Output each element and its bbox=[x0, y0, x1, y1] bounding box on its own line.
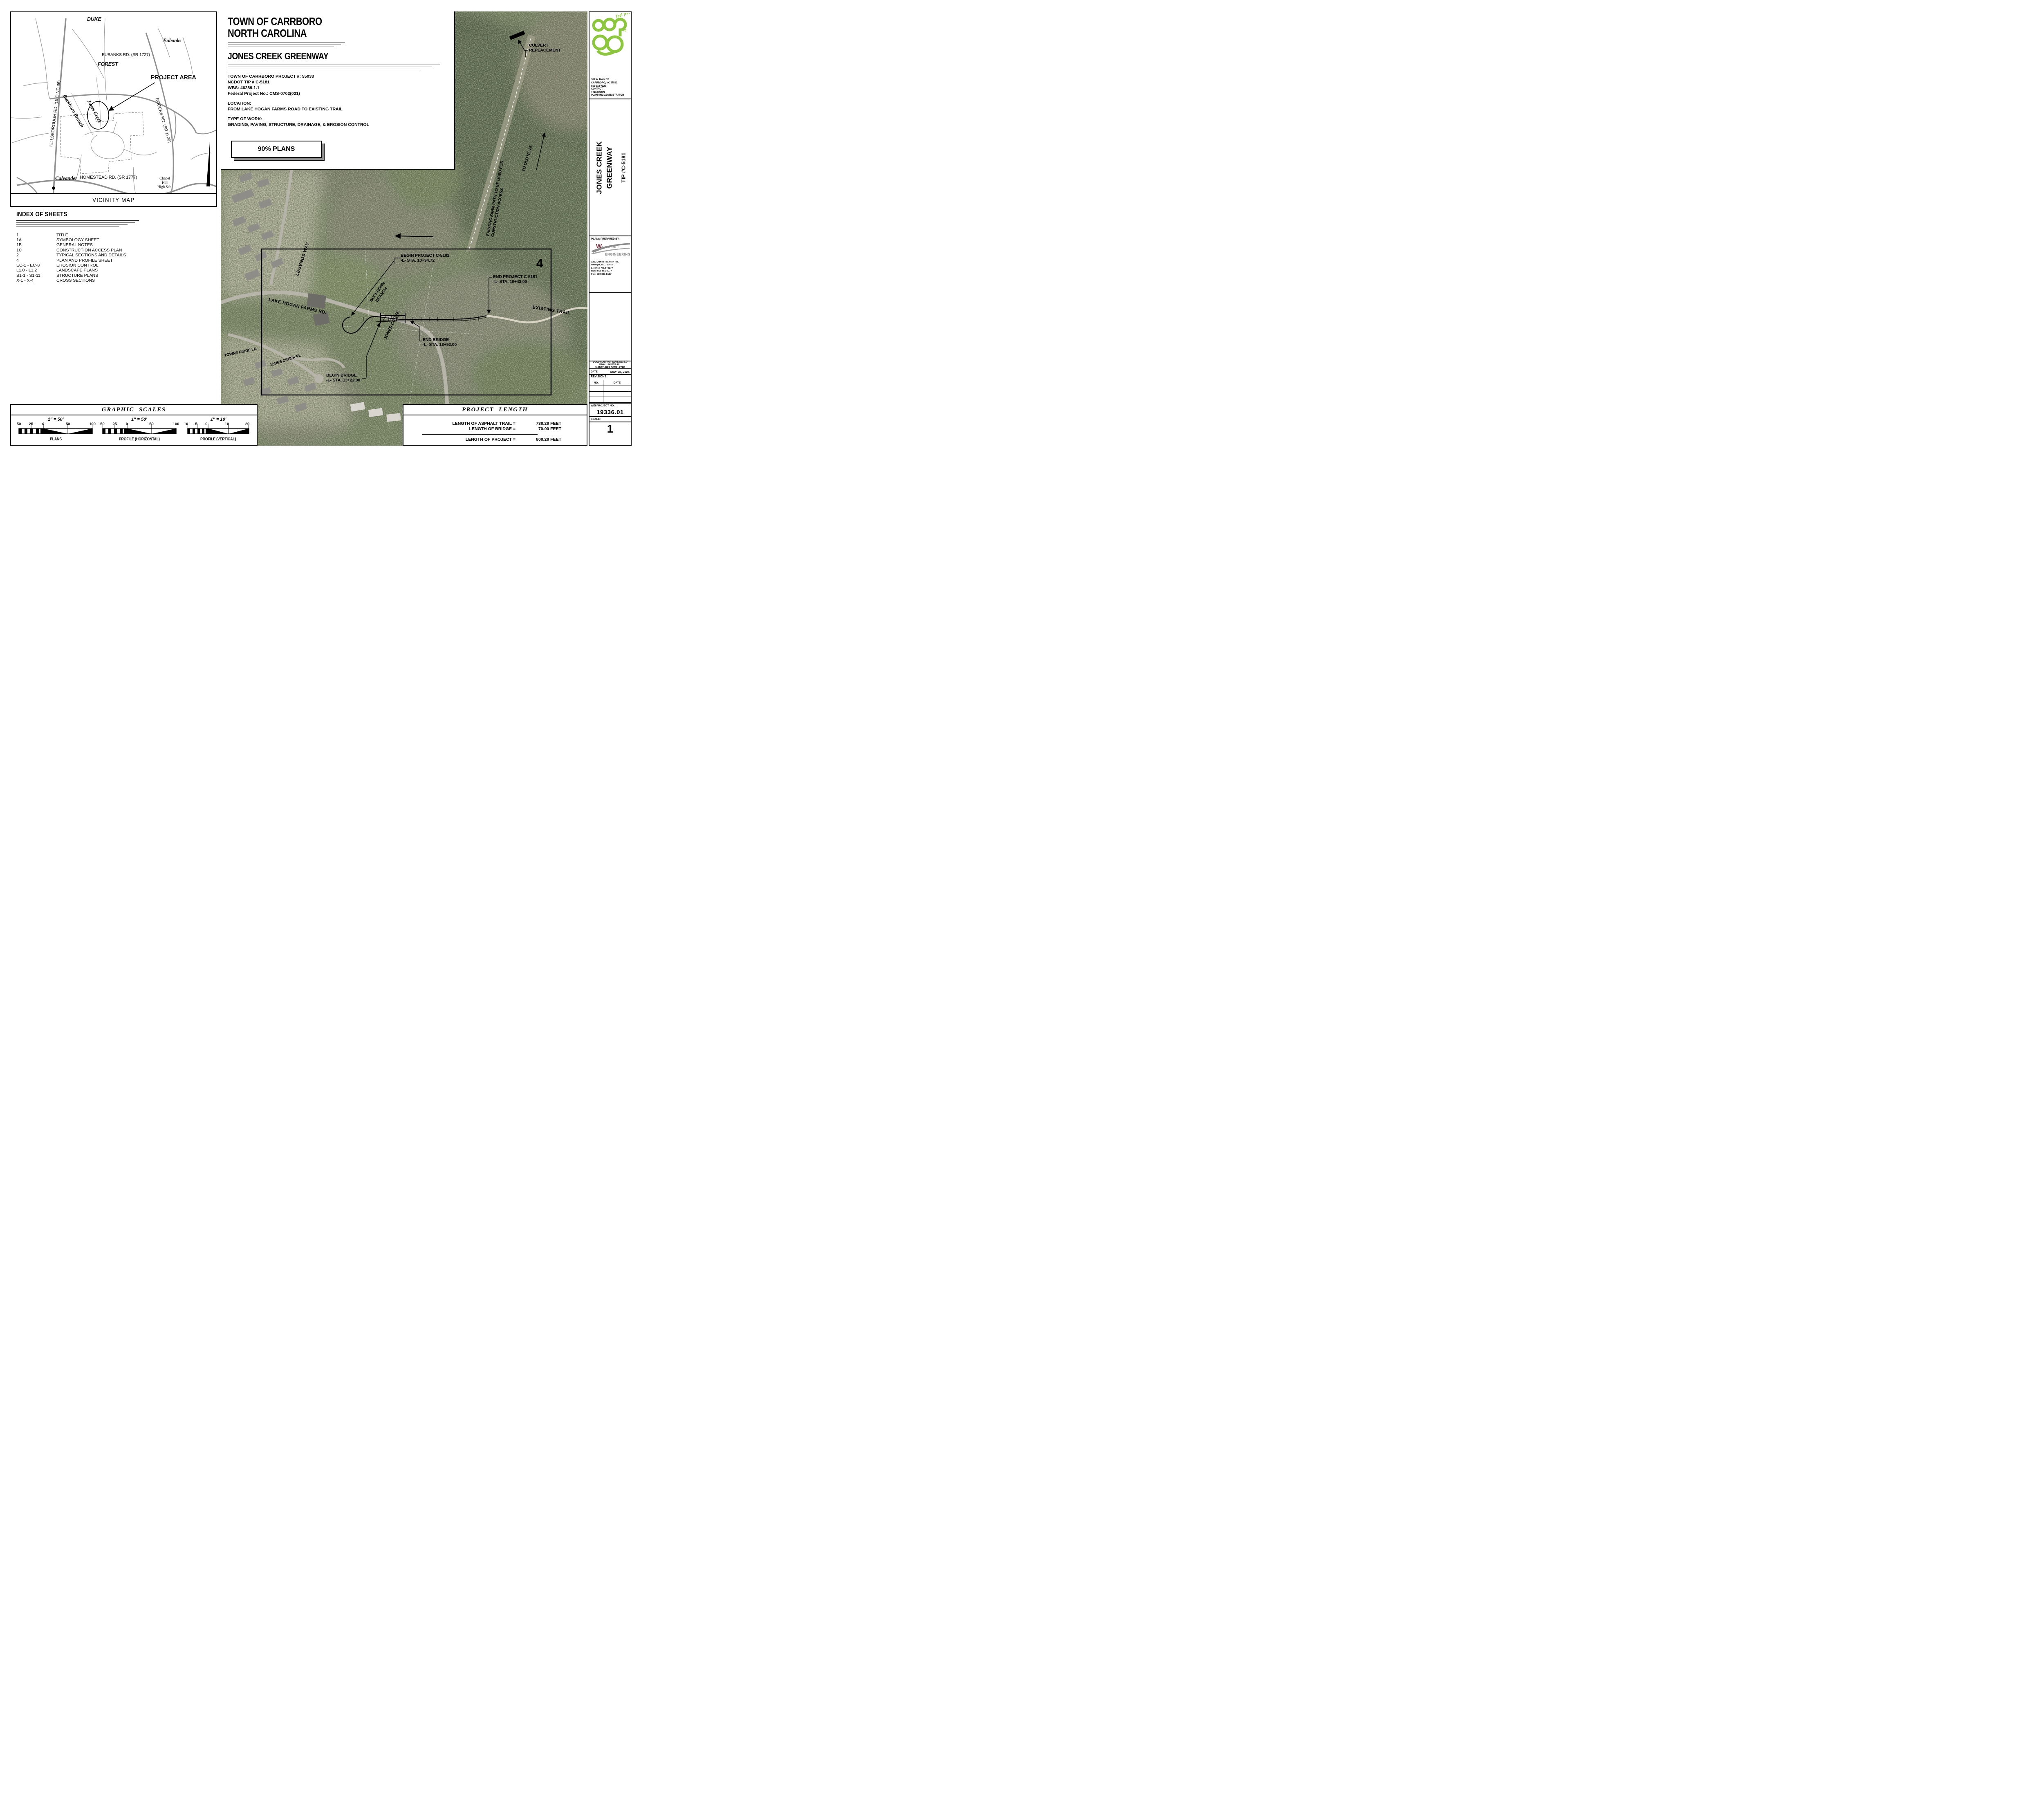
sheet-name: GENERAL NOTES bbox=[56, 242, 93, 247]
sheet-no: 1B bbox=[16, 242, 56, 247]
tick: 50 bbox=[66, 422, 70, 426]
town-name: TOWN OF CARRBORO bbox=[228, 16, 322, 27]
agency-logo-box: It's feel free 301 W. MAIN ST. CARRBORO,… bbox=[589, 12, 631, 99]
index-row: 4PLAN AND PROFILE SHEET bbox=[16, 258, 151, 263]
scale-caption: PLANS bbox=[50, 437, 62, 442]
plans-prepared-by-box: PLANS PREPARED BY: WETHERILL ENGINEERING… bbox=[589, 236, 631, 293]
north-arrow bbox=[206, 142, 210, 187]
begin-project-label: BEGIN PROJECT C-5181 -L- STA. 10+34.72 bbox=[401, 253, 449, 263]
forest-label: FOREST bbox=[98, 61, 118, 67]
wetherill-w: W bbox=[596, 243, 602, 250]
sheet-name: CONSTRUCTION ACCESS PLAN bbox=[56, 248, 122, 253]
index-row: L1.0 - L1.2LANDSCAPE PLANS bbox=[16, 268, 151, 273]
scale-profile-horizontal: 1″ = 50′ 50 25 0 50 100 bbox=[102, 417, 177, 442]
tick: 20 bbox=[245, 422, 250, 426]
scale-ticks: 50 25 0 50 100 bbox=[19, 422, 92, 426]
tick: 25 bbox=[112, 422, 117, 426]
length-row: LENGTH OF ASPHALT TRAIL = 738.28 FEET bbox=[403, 421, 587, 426]
firm-name-2: ENGINEERING bbox=[605, 253, 631, 256]
vicinity-roads bbox=[11, 12, 216, 194]
sheet-no: 4 bbox=[16, 258, 56, 263]
scale-plans: 1″ = 50′ 50 25 0 50 100 bbox=[18, 417, 93, 442]
scale-caption: PROFILE (HORIZONTAL) bbox=[119, 437, 160, 442]
wbs-number: WBS: 46289.1.1 bbox=[228, 85, 454, 91]
date-value: MAY 28, 2025 bbox=[610, 370, 630, 374]
sheet-name: CROSS SECTIONS bbox=[56, 278, 95, 283]
index-row: 1TITLE bbox=[16, 233, 151, 238]
tick: 0 bbox=[126, 422, 128, 426]
cul-de-sac bbox=[314, 374, 323, 383]
index-row: X-1 - X-4CROSS SECTIONS bbox=[16, 278, 151, 283]
scale-ratio: 1″ = 50′ bbox=[18, 417, 93, 422]
divider bbox=[228, 69, 420, 69]
divider bbox=[16, 224, 128, 225]
sum-divider bbox=[422, 434, 538, 435]
logo-feelfree-text: feel free bbox=[615, 13, 631, 19]
revisions-label: REVISIONS: bbox=[589, 375, 631, 380]
vicinity-map: DUKE FOREST Eubanks EUBANKS RD. (SR 1727… bbox=[10, 11, 217, 207]
length-value: 70.00 FEET bbox=[515, 426, 587, 432]
length-total-row: LENGTH OF PROJECT = 808.28 FEET bbox=[403, 437, 587, 442]
index-title: INDEX OF SHEETS bbox=[16, 211, 67, 218]
graphic-scales-box: GRAPHIC SCALES 1″ = 50′ 50 25 0 50 100 bbox=[10, 404, 258, 446]
scale-ticks: 50 25 0 50 100 bbox=[103, 422, 176, 426]
type-of-work-value: GRADING, PAVING, STRUCTURE, DRAINAGE, & … bbox=[228, 122, 454, 128]
tick: 10 bbox=[225, 422, 229, 426]
sidebar-title-line2: GREENWAY bbox=[604, 141, 614, 194]
tick: 5 bbox=[195, 422, 197, 426]
project-length-title: PROJECT LENGTH bbox=[403, 405, 587, 415]
title-block: TOWN OF CARRBORO NORTH CAROLINA JONES CR… bbox=[221, 11, 455, 170]
wei-project-label: WEI PROJECT NO.: bbox=[589, 403, 631, 408]
logo-its-text: It's bbox=[623, 26, 628, 32]
tick: 100 bbox=[89, 422, 96, 426]
tick: 50 bbox=[149, 422, 154, 426]
sheet-name: SYMBOLOGY SHEET bbox=[56, 238, 99, 242]
title-block-sidebar: It's feel free 301 W. MAIN ST. CARRBORO,… bbox=[589, 11, 632, 446]
date-label: DATE: bbox=[591, 370, 598, 373]
type-of-work-label: TYPE OF WORK: bbox=[228, 116, 454, 122]
sidebar-title-line1: JONES CREEK bbox=[594, 141, 604, 194]
project-length-box: PROJECT LENGTH LENGTH OF ASPHALT TRAIL =… bbox=[403, 404, 587, 446]
divider bbox=[16, 227, 119, 227]
begin-bridge-label: BEGIN BRIDGE -L- STA. 13+22.00 bbox=[326, 373, 360, 383]
project-area-arrow bbox=[109, 83, 155, 110]
sheet-no: 1A bbox=[16, 238, 56, 242]
revision-row bbox=[589, 386, 631, 392]
index-row: 1CCONSTRUCTION ACCESS PLAN bbox=[16, 248, 151, 253]
divider bbox=[16, 220, 139, 221]
vicinity-map-title: VICINITY MAP bbox=[92, 197, 135, 204]
divider bbox=[228, 45, 341, 45]
index-row: EC-1 - EC-8EROSION CONTROL bbox=[16, 263, 151, 268]
length-row: LENGTH OF BRIDGE = 70.00 FEET bbox=[403, 426, 587, 432]
end-bridge-label: END BRIDGE -L- STA. 13+92.00 bbox=[423, 338, 457, 347]
eubanks-label: Eubanks bbox=[163, 38, 181, 44]
total-label: LENGTH OF PROJECT = bbox=[403, 437, 515, 442]
date-row: DATE: MAY 28, 2025 bbox=[589, 369, 631, 375]
sheet-number: 1 bbox=[589, 422, 631, 435]
agency-address: 301 W. MAIN ST. CARRBORO, NC 27510 919-9… bbox=[591, 79, 624, 97]
divider bbox=[228, 65, 440, 65]
tick: 0 bbox=[42, 422, 44, 426]
length-value: 738.28 FEET bbox=[515, 421, 587, 426]
index-of-sheets: INDEX OF SHEETS 1TITLE 1ASYMBOLOGY SHEET… bbox=[16, 211, 151, 283]
scale-profile-vertical: 1″ = 10′ 10 5 0 10 20 bbox=[186, 417, 251, 442]
scale-ratio: 1″ = 10′ bbox=[186, 417, 251, 422]
scale-caption: PROFILE (VERTICAL) bbox=[200, 437, 236, 442]
tick: 100 bbox=[173, 422, 179, 426]
sheet-no: X-1 - X-4 bbox=[16, 278, 56, 283]
revision-row bbox=[589, 397, 631, 403]
scale-ratio: 1″ = 50′ bbox=[102, 417, 177, 422]
graphic-scales-title: GRAPHIC SCALES bbox=[11, 405, 257, 415]
scale-label: SCALE: bbox=[589, 417, 631, 422]
end-project-label: END PROJECT C-5181 -L- STA. 18+43.00 bbox=[493, 275, 537, 284]
sheet-no: 1C bbox=[16, 248, 56, 253]
sheet-name: STRUCTURE PLANS bbox=[56, 273, 98, 278]
homestead-rd-label: HOMESTEAD RD. (SR 1777) bbox=[80, 175, 137, 180]
length-label: LENGTH OF ASPHALT TRAIL = bbox=[403, 421, 515, 426]
wei-project-number: 19336.01 bbox=[589, 408, 631, 417]
index-row: S1-1 - S1-11STRUCTURE PLANS bbox=[16, 273, 151, 278]
duke-label: DUKE bbox=[87, 16, 101, 22]
sheet-no: L1.0 - L1.2 bbox=[16, 268, 56, 273]
sheet-no: 2 bbox=[16, 253, 56, 258]
tick: 10 bbox=[184, 422, 188, 426]
location-label: LOCATION: bbox=[228, 101, 454, 106]
sheet-no: EC-1 - EC-8 bbox=[16, 263, 56, 268]
title-sheet: CULVERT REPLACEMENT EXISTING FARM PATH T… bbox=[0, 0, 633, 450]
sheet-name: EROSION CONTROL bbox=[56, 263, 99, 268]
state-name: NORTH CAROLINA bbox=[228, 27, 307, 39]
revisions-header: NO. DATE bbox=[589, 380, 631, 386]
prepared-by-label: PLANS PREPARED BY: bbox=[591, 238, 629, 240]
rev-no-col: NO. bbox=[589, 380, 603, 386]
sidebar-tip-number: TIP #C-5181 bbox=[620, 141, 626, 194]
sheet-name: TITLE bbox=[56, 233, 68, 238]
tick: 50 bbox=[100, 422, 105, 426]
scale-ticks: 10 5 0 10 20 bbox=[186, 422, 247, 426]
signature-stamp: DOCUMENT NOT CONSIDERED FINAL UNLESS ALL… bbox=[589, 361, 631, 369]
plans-stage-badge: 90% PLANS bbox=[231, 141, 322, 158]
sidebar-project-title: JONES CREEK GREENWAY TIP #C-5181 bbox=[589, 99, 631, 236]
length-label: LENGTH OF BRIDGE = bbox=[403, 426, 515, 432]
calvander-dot bbox=[52, 186, 55, 190]
divider bbox=[16, 222, 135, 223]
tick: 25 bbox=[29, 422, 34, 426]
culvert-label: CULVERT REPLACEMENT bbox=[529, 43, 561, 53]
project-number: TOWN OF CARRBORO PROJECT #: 55033 bbox=[228, 74, 454, 79]
total-value: 808.28 FEET bbox=[515, 437, 587, 442]
seal-box bbox=[589, 293, 631, 361]
carrboro-logo: It's feel free bbox=[590, 13, 631, 66]
sheet-no: S1-1 - S1-11 bbox=[16, 273, 56, 278]
index-row: 1ASYMBOLOGY SHEET bbox=[16, 238, 151, 242]
wetherill-logo: WETHERILL ENGINEERING bbox=[591, 241, 629, 255]
index-row: 1BGENERAL NOTES bbox=[16, 242, 151, 247]
revision-row bbox=[589, 392, 631, 397]
sheet-no: 1 bbox=[16, 233, 56, 238]
chapel-hill-high-label: Chapel Hill High Sch. bbox=[152, 177, 177, 190]
rev-date-col: DATE bbox=[603, 380, 631, 386]
calvander-label: Calvander bbox=[55, 175, 77, 182]
location-value: FROM LAKE HOGAN FARMS ROAD TO EXISTING T… bbox=[228, 106, 454, 112]
project-title: JONES CREEK GREENWAY bbox=[228, 51, 328, 62]
sheet-name: LANDSCAPE PLANS bbox=[56, 268, 98, 273]
project-area-label: PROJECT AREA bbox=[151, 74, 196, 81]
federal-project-number: Federal Project No.: CMS-0702(021) bbox=[228, 91, 454, 96]
sheet-name: PLAN AND PROFILE SHEET bbox=[56, 258, 113, 263]
firm-name-1: ETHERILL bbox=[602, 245, 620, 249]
sheet-name: TYPICAL SECTIONS AND DETAILS bbox=[56, 253, 126, 258]
firm-address: 1223 Jones Franklin Rd. Raleigh, N.C. 27… bbox=[591, 261, 629, 276]
index-row: 2TYPICAL SECTIONS AND DETAILS bbox=[16, 253, 151, 258]
sheet-4-reference: 4 bbox=[536, 257, 543, 271]
tick: 0 bbox=[205, 422, 207, 426]
divider bbox=[228, 67, 432, 67]
divider bbox=[228, 47, 334, 47]
divider bbox=[228, 43, 345, 43]
tick: 50 bbox=[17, 422, 21, 426]
plans-stage-text: 90% PLANS bbox=[258, 146, 295, 153]
eubanks-rd-label: EUBANKS RD. (SR 1727) bbox=[102, 52, 150, 57]
ncdot-tip: NCDOT TIP # C-5181 bbox=[228, 79, 454, 85]
